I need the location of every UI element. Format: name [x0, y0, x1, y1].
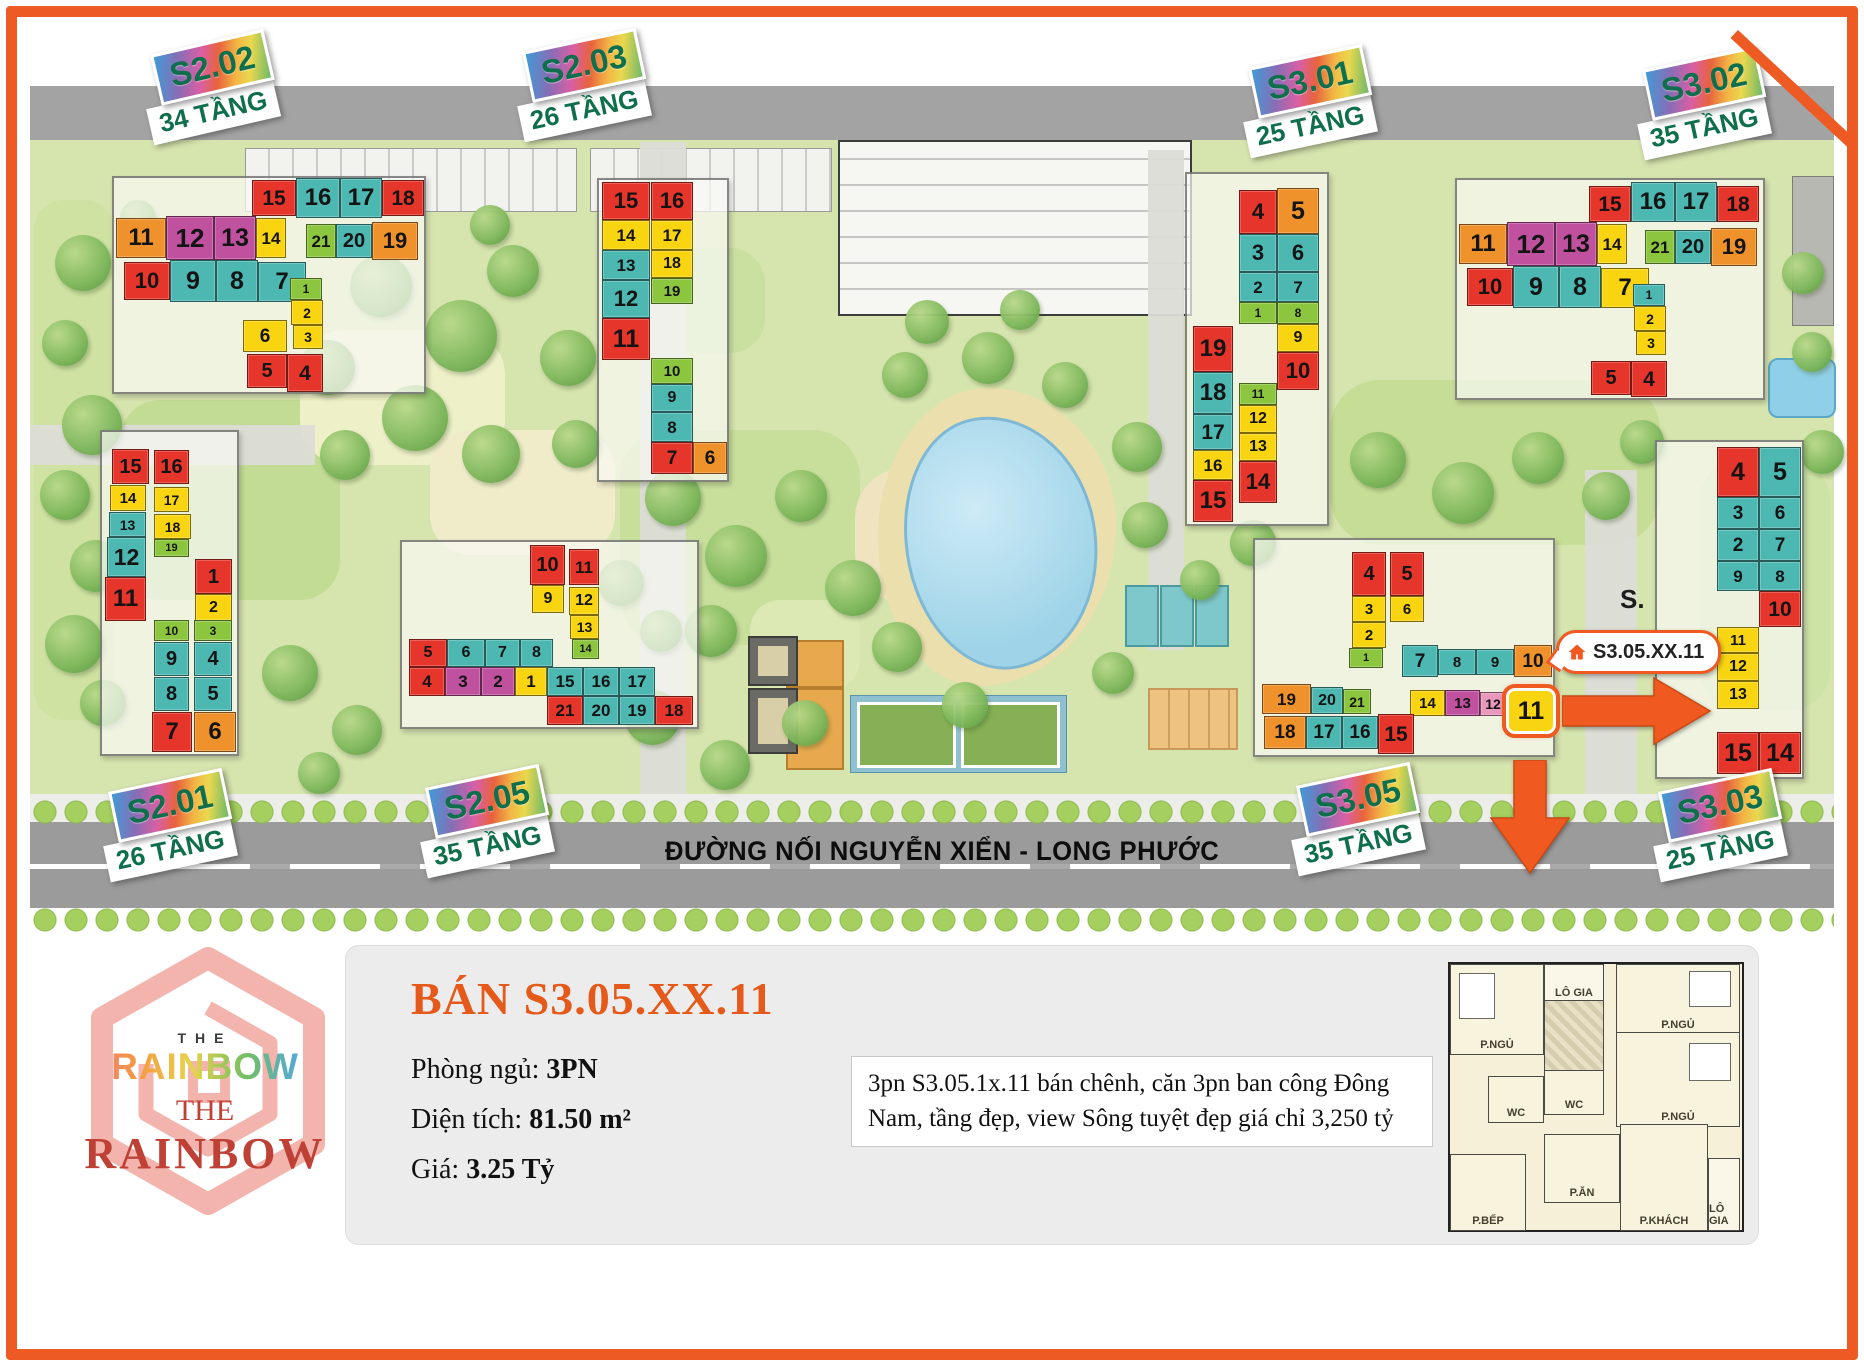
unit-cell: 2	[481, 667, 515, 696]
unit-cell: 18	[1264, 716, 1306, 749]
room-loggia: LÔ GIA	[1544, 964, 1604, 1003]
unit-cell: 8	[1559, 266, 1601, 308]
tree	[1792, 332, 1832, 372]
watermark-text: S.	[1620, 584, 1645, 615]
room-loggia: LÔ GIA	[1708, 1158, 1740, 1231]
marker-label: S3.05.XX.11	[1593, 641, 1704, 664]
unit-cell: 3	[445, 667, 481, 696]
unit-cell: 12	[166, 216, 214, 260]
unit-cell: 9	[651, 384, 693, 412]
logo-the-small: THE	[70, 1030, 340, 1046]
unit-cell: 16	[154, 450, 189, 484]
tree	[1000, 290, 1040, 330]
room-core	[1544, 1000, 1604, 1071]
unit-cell: 17	[1193, 414, 1233, 450]
building-S3.05: 453621789101920211413121118171615	[1253, 538, 1555, 757]
unit-cell: 10	[1467, 268, 1513, 306]
unit-cell: 6	[194, 712, 236, 752]
unit-cell: 1	[1239, 302, 1277, 324]
unit-cell: 13	[602, 250, 650, 280]
tree	[487, 245, 539, 297]
unit-cell: 13	[109, 512, 146, 537]
field-value: 3PN	[546, 1054, 597, 1085]
unit-cell: 14	[602, 220, 650, 250]
bed-icon	[1689, 1043, 1731, 1081]
internal-road-right	[1148, 150, 1184, 650]
unit-cell: 14	[1239, 461, 1277, 503]
unit-cell: 6	[1277, 234, 1319, 272]
unit-cell: 12	[1239, 405, 1277, 433]
home-icon	[1567, 642, 1587, 662]
unit-cell: 17	[651, 220, 693, 250]
unit-cell: 16	[651, 182, 693, 220]
tree	[1122, 502, 1168, 548]
unit-cell: 18	[655, 696, 693, 725]
tree	[882, 352, 928, 398]
unit-cell: 4	[1352, 552, 1386, 596]
unit-cell: 18	[154, 514, 191, 539]
tree	[462, 425, 520, 483]
unit-cell: 18	[382, 180, 424, 216]
bush-row-bottom	[30, 906, 1834, 934]
unit-cell: 11	[105, 577, 146, 621]
unit-cell: 10	[1759, 591, 1801, 627]
field-bedrooms: Phòng ngủ: 3PN	[411, 1054, 598, 1086]
unit-cell: 6	[447, 639, 485, 667]
bed-icon	[1689, 971, 1731, 1007]
field-label: Diện tích:	[411, 1104, 522, 1135]
room-bedroom: P.NGỦ	[1616, 1032, 1740, 1127]
arrow-right-icon	[1562, 676, 1712, 746]
unit-cell: 20	[1311, 687, 1343, 714]
unit-cell: 12	[107, 537, 146, 577]
unit-cell: 19	[154, 539, 189, 557]
logo-text-block: THE RAINBOW THE RAINBOW	[70, 1030, 340, 1179]
unit-cell: 9	[1717, 561, 1759, 591]
unit-cell: 6	[243, 320, 287, 352]
unit-cell: 11	[602, 318, 650, 360]
unit-cell: 10	[530, 545, 565, 585]
unit-cell: 9	[1277, 324, 1319, 352]
unit-cell: 17	[154, 487, 189, 512]
unit-cell: 8	[1277, 302, 1319, 324]
unit-cell: 4	[287, 354, 323, 392]
unit-cell: 4	[1717, 447, 1759, 497]
tree	[1512, 432, 1564, 484]
unit-cell: 10	[1277, 352, 1319, 390]
unit-cell: 13	[1239, 433, 1277, 461]
unit-cell: 2	[195, 594, 232, 621]
tree	[1350, 432, 1406, 488]
unit-cell: 2	[1239, 272, 1277, 302]
unit-cell: 21	[1645, 230, 1675, 264]
listing-panel: BÁN S3.05.XX.11 Phòng ngủ: 3PN Diện tích…	[345, 945, 1759, 1245]
unit-cell: 10	[154, 620, 189, 641]
logo-the-red: THE	[70, 1094, 340, 1128]
unit-cell: 13	[1717, 681, 1759, 709]
unit-cell: 12	[1717, 653, 1759, 681]
unit-cell: 13	[1445, 690, 1480, 716]
unit-cell: 2	[1634, 306, 1666, 331]
tree	[1180, 560, 1220, 600]
tree	[905, 300, 949, 344]
unit-cell: 8	[1438, 649, 1476, 675]
unit-cell: 15	[1589, 186, 1631, 222]
unit-cell: 3	[194, 620, 232, 641]
tree	[700, 740, 750, 790]
unit-cell: 14	[1759, 732, 1801, 774]
unit-cell: 11	[569, 549, 599, 585]
unit-cell: 3	[293, 325, 323, 349]
unit-cell: 17	[1306, 716, 1342, 749]
arrow-down-icon	[1490, 760, 1570, 875]
unit-cell-highlighted[interactable]: 11	[1506, 688, 1556, 734]
unit-cell: 15	[112, 449, 149, 484]
unit-cell: 13	[570, 615, 599, 639]
unit-cell: 6	[1390, 596, 1424, 622]
unit-cell: 4	[409, 667, 445, 696]
unit-cell: 15	[1717, 732, 1759, 774]
unit-cell: 11	[116, 218, 166, 258]
tree	[775, 470, 827, 522]
unit-cell: 5	[1591, 361, 1631, 395]
logo-rainbow-gradient: RAINBOW	[70, 1046, 340, 1088]
unit-cell: 14	[572, 639, 599, 659]
unit-cell: 7	[1759, 529, 1801, 561]
unit-cell: 17	[340, 178, 382, 218]
unit-cell: 16	[1193, 450, 1233, 480]
cabana	[1125, 585, 1159, 647]
unit-cell: 18	[651, 250, 693, 278]
unit-cell: 19	[1193, 326, 1233, 372]
unit-cell: 4	[194, 642, 232, 676]
tree	[962, 332, 1014, 384]
tree	[782, 700, 828, 746]
unit-cell: 2	[1717, 529, 1759, 561]
unit-cell: 15	[602, 182, 650, 220]
unit-cell: 8	[651, 412, 693, 442]
unit-cell: 11	[1459, 224, 1507, 264]
unit-cell: 8	[154, 677, 189, 711]
unit-cell: 14	[1410, 690, 1445, 716]
unit-cell: 9	[1476, 649, 1514, 675]
unit-cell: 19	[372, 222, 418, 260]
tree	[1042, 362, 1088, 408]
tree	[42, 320, 88, 366]
unit-cell: 16	[583, 667, 619, 696]
unit-cell: 15	[547, 667, 583, 696]
tree	[45, 615, 103, 673]
unit-cell: 19	[651, 278, 693, 304]
unit-cell: 20	[583, 696, 619, 725]
unit-cell: 5	[194, 677, 232, 711]
room-wc: WC	[1544, 1068, 1604, 1115]
tree	[825, 560, 881, 616]
unit-cell: 9	[154, 642, 189, 676]
unit-cell: 8	[216, 260, 258, 302]
unit-cell: 17	[619, 667, 655, 696]
tree	[332, 705, 382, 755]
tree	[1432, 462, 1494, 524]
unit-cell: 15	[1193, 480, 1233, 522]
unit-cell: 6	[693, 442, 727, 474]
poster-canvas: ĐƯỜNG NỐI NGUYỄN XIỂN - LONG PHƯỚC 15161…	[0, 0, 1864, 1366]
unit-cell: 9	[1513, 266, 1559, 308]
pavilion	[1148, 688, 1238, 750]
unit-cell: 13	[214, 216, 256, 260]
unit-cell: 17	[1675, 182, 1717, 222]
building-S2.01: 15161417131812191112103948576	[100, 430, 239, 756]
unit-cell: 8	[520, 639, 553, 667]
unit-cell: 9	[532, 585, 564, 613]
unit-cell: 1	[195, 559, 232, 594]
utility-building	[1792, 176, 1834, 326]
unit-cell: 3	[1352, 596, 1386, 622]
unit-cell: 18	[1193, 372, 1233, 414]
unit-cell: 8	[1759, 561, 1801, 591]
field-area: Diện tích: 81.50 m²	[411, 1104, 631, 1136]
field-label: Giá:	[411, 1154, 459, 1185]
top-road	[30, 86, 1834, 140]
unit-cell: 3	[1636, 331, 1666, 355]
tennis-court	[857, 702, 956, 768]
unit-cell: 1	[1633, 284, 1665, 306]
unit-cell: 21	[306, 224, 336, 258]
unit-cell: 5	[1759, 447, 1801, 497]
tree	[262, 645, 318, 701]
tree	[382, 385, 448, 451]
unit-cell: 2	[1352, 622, 1386, 648]
tree	[540, 330, 596, 386]
tree	[320, 430, 370, 480]
building-S2.03: 151614171318121911109876	[597, 178, 729, 482]
field-value: 3.25 Tỷ	[466, 1154, 554, 1185]
listing-title: BÁN S3.05.XX.11	[411, 972, 774, 1025]
unit-cell: 12	[1480, 692, 1506, 716]
tree	[942, 682, 988, 728]
listing-description: 3pn S3.05.1x.11 bán chênh, căn 3pn ban c…	[851, 1056, 1433, 1147]
unit-cell: 11	[1717, 627, 1759, 653]
unit-cell: 19	[619, 696, 655, 725]
unit-cell: 4	[1239, 190, 1277, 234]
unit-cell: 21	[547, 696, 583, 725]
unit-cell: 5	[1277, 188, 1319, 234]
unit-cell: 7	[1277, 272, 1319, 302]
unit-cell: 7	[1402, 645, 1438, 677]
unit-cell: 16	[1631, 182, 1675, 222]
unit-marker[interactable]: S3.05.XX.11	[1556, 630, 1721, 674]
unit-cell: 14	[110, 485, 146, 511]
pergola	[748, 636, 798, 686]
unit-cell: 12	[569, 587, 599, 615]
logo-rainbow-red: RAINBOW	[70, 1128, 340, 1179]
unit-cell: 13	[1555, 222, 1597, 266]
unit-cell: 14	[256, 218, 286, 258]
tree	[1582, 472, 1630, 520]
bed-icon	[1459, 973, 1495, 1019]
unit-cell: 15	[1378, 714, 1414, 754]
unit-cell: 16	[1342, 716, 1378, 749]
building-S2.02: 151617181112131421201910987123654	[112, 176, 426, 394]
unit-cell: 3	[1239, 234, 1277, 272]
unit-cell: 19	[1262, 684, 1311, 714]
unit-cell: 2	[291, 300, 323, 325]
building-S2.05: 101191213145678432115161721201918	[400, 540, 699, 729]
unit-cell: 20	[336, 224, 372, 258]
unit-cell: 10	[124, 262, 170, 300]
unit-cell: 5	[409, 639, 447, 667]
tree	[1800, 430, 1844, 474]
building-S3.02: 15161718111213142120191098712354	[1455, 178, 1765, 400]
unit-cell: 21	[1343, 689, 1371, 714]
tree	[1112, 422, 1162, 472]
tree	[298, 752, 340, 794]
tree	[872, 622, 922, 672]
tree	[425, 300, 497, 372]
unit-cell: 4	[1631, 361, 1667, 397]
field-price: Giá: 3.25 Tỷ	[411, 1154, 554, 1186]
unit-cell: 12	[602, 280, 650, 318]
tree	[470, 205, 510, 245]
unit-cell: 7	[485, 639, 520, 667]
road-name-label: ĐƯỜNG NỐI NGUYỄN XIỂN - LONG PHƯỚC	[665, 836, 1219, 867]
unit-cell: 20	[1675, 230, 1711, 264]
floorplan-thumbnail[interactable]: P.NGỦ LÔ GIA P.NGỦ P.NGỦ WC WC P.ĂN P.KH…	[1448, 962, 1744, 1232]
tree	[40, 470, 90, 520]
unit-cell: 10	[651, 358, 693, 384]
unit-cell: 12	[1507, 222, 1555, 266]
unit-cell: 3	[1717, 497, 1759, 529]
tree	[1092, 652, 1134, 694]
room-bedroom: P.NGỦ	[1616, 964, 1740, 1035]
unit-cell: 9	[170, 260, 216, 302]
tree	[705, 525, 767, 587]
unit-cell: 15	[252, 180, 296, 216]
room-dining: P.ĂN	[1544, 1134, 1620, 1203]
room-bedroom: P.NGỦ	[1450, 964, 1544, 1055]
tree	[1782, 252, 1824, 294]
unit-cell: 11	[1239, 383, 1277, 405]
unit-cell: 1	[515, 667, 547, 696]
tree	[552, 420, 600, 468]
room-living: P.KHÁCH	[1620, 1124, 1708, 1231]
unit-cell: 18	[1717, 186, 1759, 222]
room-kitchen: P.BẾP	[1450, 1154, 1526, 1231]
unit-cell: 7	[152, 712, 192, 752]
field-label: Phòng ngủ:	[411, 1054, 539, 1085]
unit-cell: 5	[247, 354, 287, 388]
unit-cell: 6	[1759, 497, 1801, 529]
room-wc: WC	[1488, 1076, 1544, 1123]
unit-cell: 5	[1390, 552, 1424, 596]
tree	[55, 235, 111, 291]
building-S3.01: 45362718910191817161511121314	[1185, 172, 1329, 526]
unit-cell: 1	[1349, 648, 1383, 668]
unit-cell: 7	[651, 442, 693, 474]
field-value: 81.50 m²	[529, 1104, 631, 1135]
unit-cell: 16	[296, 178, 340, 218]
unit-cell: 1	[290, 278, 322, 300]
unit-cell: 14	[1597, 224, 1627, 264]
unit-cell: 19	[1711, 228, 1757, 266]
